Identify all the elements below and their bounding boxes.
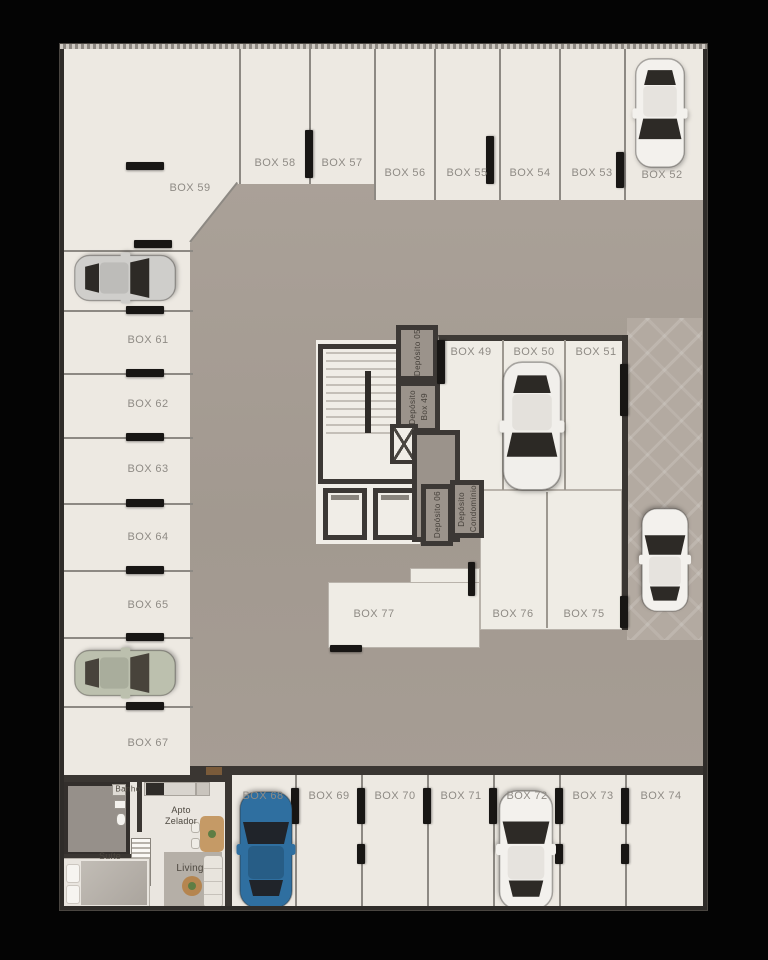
partition-line [239, 44, 241, 184]
partition-line [434, 44, 436, 200]
floor-plan-stage: Depósito 05 Depósito Box 49 Depósito 06 … [0, 0, 768, 960]
car-ramp [634, 507, 696, 613]
partition-line [559, 44, 561, 200]
car-left-lower-sage [73, 645, 177, 701]
box-label-68: BOX 68 [243, 790, 284, 802]
box-label-76: BOX 76 [493, 608, 534, 620]
sofa [203, 855, 223, 908]
door-stub [126, 633, 164, 641]
box-label-75: BOX 75 [564, 608, 605, 620]
door-stub [126, 306, 164, 314]
partition-line [624, 44, 626, 200]
plant [188, 882, 196, 890]
door-stub [357, 788, 365, 824]
box-label-64: BOX 64 [128, 531, 169, 543]
door-stub [305, 130, 313, 178]
door-stub [437, 340, 445, 384]
storage-room-06-label: Depósito 06 [433, 491, 442, 538]
caretaker-apartment [60, 775, 232, 910]
storage-room-condominio-label-line2: Condomínio [469, 485, 478, 532]
fridge [196, 782, 210, 796]
storage-room-condominio-label-line1: Depósito [457, 492, 466, 527]
dining-table [200, 816, 224, 852]
room-label-banho: Banho [115, 785, 140, 794]
bed [62, 858, 150, 908]
bathroom-sink [114, 800, 126, 809]
door-stub [357, 844, 365, 864]
box-label-50: BOX 50 [514, 346, 555, 358]
plant [208, 830, 216, 838]
blanket [81, 861, 147, 905]
pillow [66, 864, 80, 883]
car-box50 [499, 359, 565, 493]
pillow [66, 885, 80, 904]
room-label-suite: Suíte [99, 851, 121, 861]
door-stub [621, 844, 629, 864]
box-label-77: BOX 77 [354, 608, 395, 620]
partition-line [374, 44, 376, 200]
car-box72 [494, 789, 558, 911]
box-label-65: BOX 65 [128, 599, 169, 611]
box-label-51: BOX 51 [576, 346, 617, 358]
door-stub [126, 162, 164, 170]
door-stub [616, 152, 624, 188]
box-label-71: BOX 71 [441, 790, 482, 802]
top-wall-hatch [60, 44, 707, 49]
box-label-69: BOX 69 [309, 790, 350, 802]
door-stub [620, 364, 628, 416]
box-label-58: BOX 58 [255, 157, 296, 169]
door-stub [126, 702, 164, 710]
elevator-shaft-2 [373, 488, 417, 540]
box-label-57: BOX 57 [322, 157, 363, 169]
apartment-door [206, 767, 222, 775]
coffee-table [182, 876, 202, 896]
box-label-67: BOX 67 [128, 737, 169, 749]
door-stub [621, 788, 629, 824]
box-label-61: BOX 61 [128, 334, 169, 346]
door-stub [126, 433, 164, 441]
storage-room-box49-label-line1: Depósito [408, 390, 417, 425]
door-stub [423, 788, 431, 824]
storage-room-05-label: Depósito 05 [413, 329, 422, 376]
box-label-62: BOX 62 [128, 398, 169, 410]
door-stub [468, 562, 475, 596]
chair [191, 838, 200, 849]
room-label-apto-line2: Zelador [165, 816, 197, 826]
car-left-upper-silver [73, 250, 177, 306]
car-box68-blue [236, 789, 296, 911]
door-stub [126, 369, 164, 377]
toilet [116, 813, 126, 826]
storage-room-06: Depósito 06 [421, 484, 453, 546]
box-label-49: BOX 49 [451, 346, 492, 358]
storage-room-05: Depósito 05 [396, 325, 438, 381]
box-label-54: BOX 54 [510, 167, 551, 179]
door-stub [330, 645, 362, 652]
door-stub [126, 499, 164, 507]
box-label-59: BOX 59 [170, 182, 211, 194]
elevator-shaft-1 [323, 488, 367, 540]
box-label-52: BOX 52 [642, 169, 683, 181]
box-label-56: BOX 56 [385, 167, 426, 179]
box-label-72: BOX 72 [507, 790, 548, 802]
box-label-63: BOX 63 [128, 463, 169, 475]
box77-main [328, 582, 480, 648]
box-label-53: BOX 53 [572, 167, 613, 179]
box-label-74: BOX 74 [641, 790, 682, 802]
stove [146, 783, 164, 795]
car-box52 [629, 57, 691, 169]
door-stub [134, 240, 172, 248]
stair-railing [365, 371, 371, 433]
door-stub [126, 566, 164, 574]
partition-line [546, 492, 548, 628]
garage-floor-plan: Depósito 05 Depósito Box 49 Depósito 06 … [60, 44, 707, 910]
room-label-living: Living [176, 864, 203, 874]
door-stub [620, 596, 628, 628]
bottom-row-wall [190, 766, 707, 775]
box-label-73: BOX 73 [573, 790, 614, 802]
room-label-apto-line1: Apto [171, 805, 190, 815]
storage-room-box49-label-line2: Box 49 [420, 393, 429, 420]
box-label-70: BOX 70 [375, 790, 416, 802]
box-label-55: BOX 55 [447, 167, 488, 179]
partition-line [499, 44, 501, 200]
storage-room-condominio: Depósito Condomínio [450, 480, 484, 538]
